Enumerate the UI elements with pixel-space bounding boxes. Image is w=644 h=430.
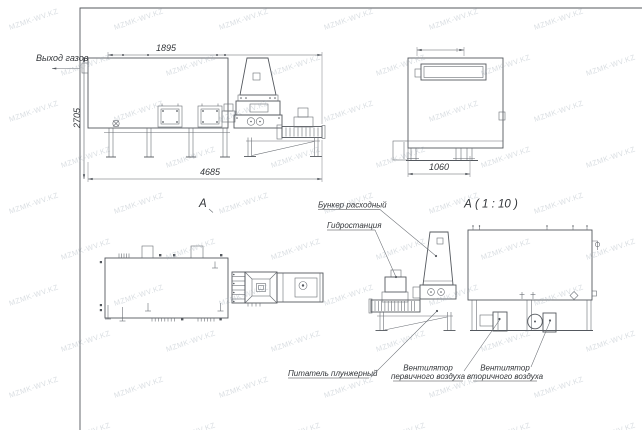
dim-value-2705: 2705: [72, 107, 82, 129]
drawing-frame: [80, 8, 642, 430]
technical-drawing-image: MZMK-WV.KZ: [0, 0, 644, 430]
discharge-chute: [298, 108, 308, 117]
boiler-plant-drawing: MZMK-WV.KZ: [0, 0, 644, 430]
trestle-detail: [376, 312, 456, 331]
callout-fan-secondary-line2: вторичного воздуха: [467, 372, 544, 381]
conveyor: [277, 108, 325, 139]
callout-fan-primary-line2: первичного воздуха: [391, 372, 466, 381]
boiler-body-plan: [105, 258, 228, 318]
section-letter: А: [198, 198, 207, 210]
dim-value-1060: 1060: [429, 162, 449, 172]
detail-view-A: [369, 225, 600, 332]
secondary-air-fan: [528, 313, 556, 332]
feed-hopper-detail: [423, 232, 453, 285]
callout-hydraulic-label: Гидростанция: [327, 221, 382, 230]
feeder-plan: [277, 273, 323, 302]
plan-view: [100, 246, 323, 322]
feed-hopper: [238, 58, 278, 101]
conveyor-detail: [369, 299, 420, 313]
callout-labels: Бункер расходный Гидростанция А ( 1 : 10…: [288, 199, 550, 382]
dim-value-4685: 4685: [200, 167, 221, 177]
section-mark-A: А: [198, 198, 213, 213]
plan-bottom-details: [105, 262, 224, 322]
dim-value-1895: 1895: [156, 43, 177, 53]
